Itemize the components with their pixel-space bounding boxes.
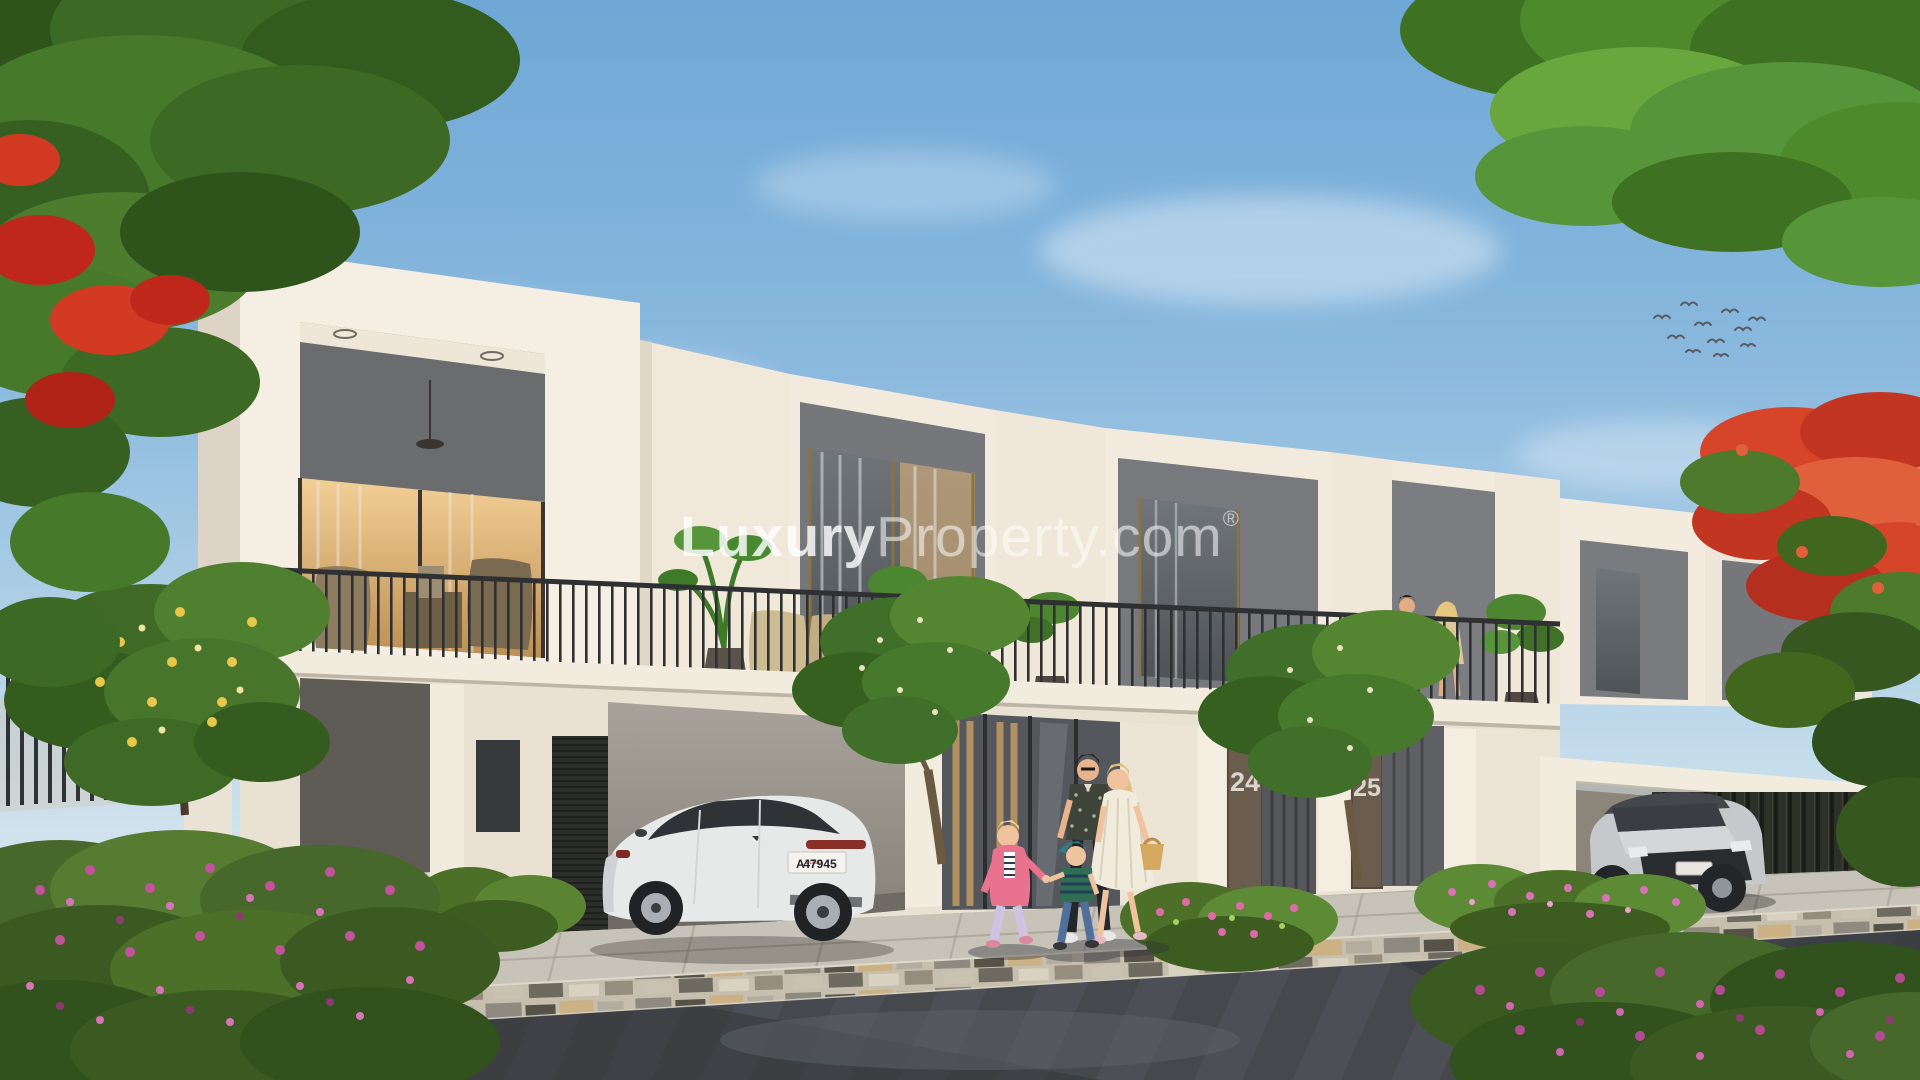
bougainvillea-foreground-right [1410,932,1920,1080]
property-photo: 24 25 [0,0,1920,1080]
unit-e [1560,498,1705,706]
pillar [1198,726,1226,898]
straw-bag [1140,844,1164,870]
license-plate: A Dubai 47945 [788,852,846,873]
pillar [1444,728,1476,888]
rendered-scene: 24 25 [0,0,1920,1080]
tail-light [616,850,630,858]
tail-light [806,840,866,849]
svg-text:47945: 47945 [803,857,837,871]
small-window [476,740,520,832]
